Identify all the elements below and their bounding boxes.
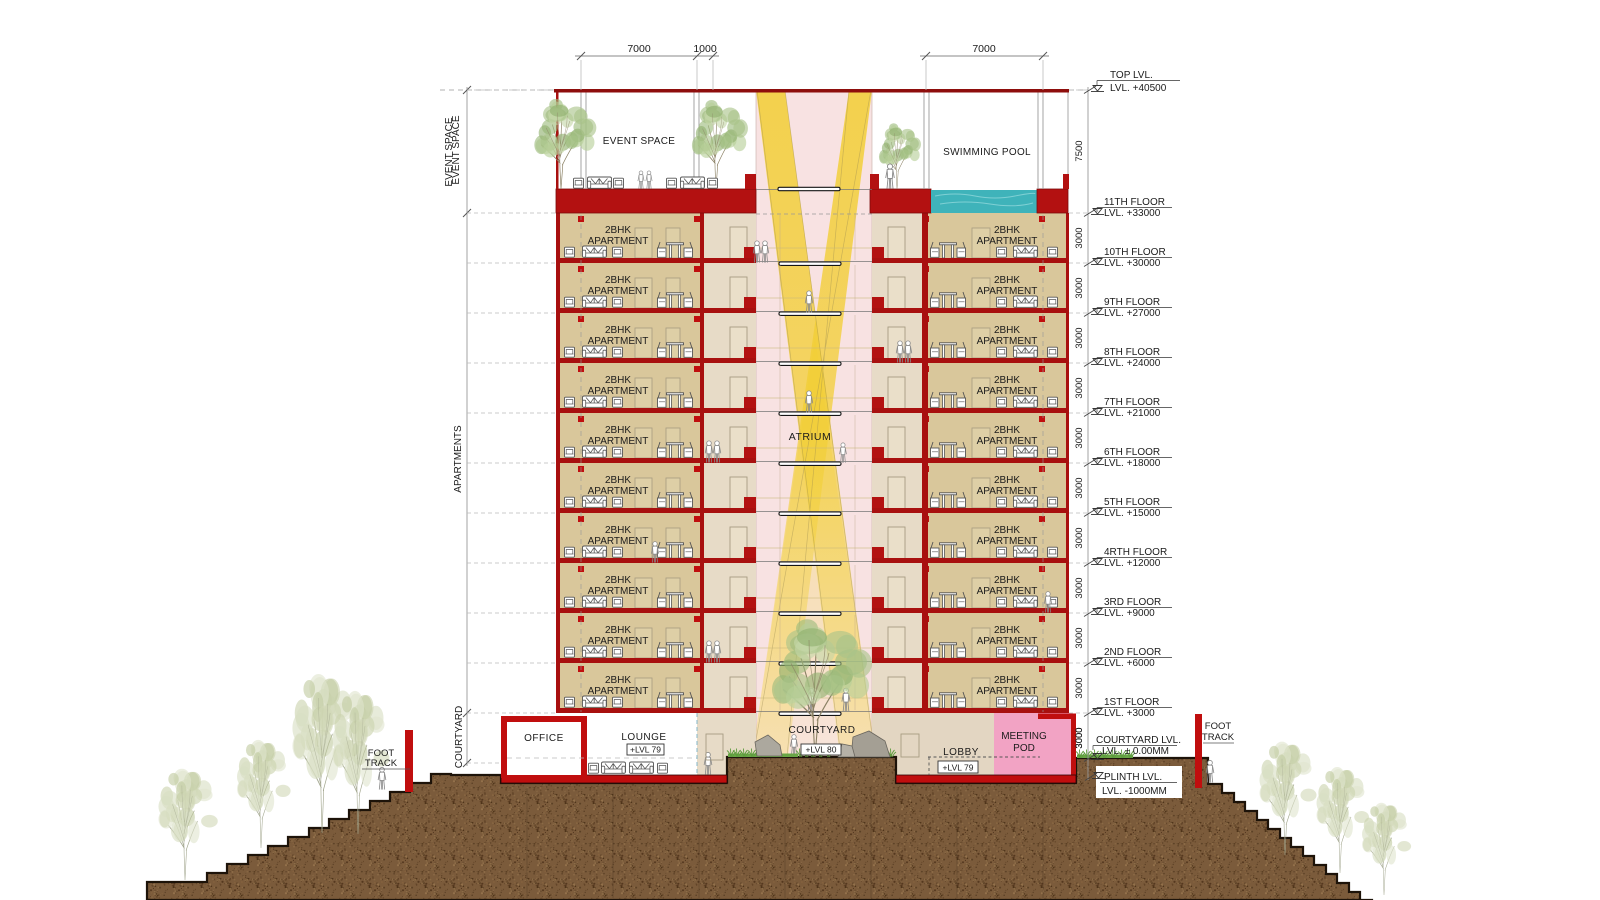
svg-text:TOP LVL.: TOP LVL. (1110, 70, 1153, 81)
svg-text:2BHK: 2BHK (605, 225, 631, 236)
svg-text:SWIMMING POOL: SWIMMING POOL (943, 147, 1031, 158)
svg-text:2BHK: 2BHK (994, 525, 1020, 536)
svg-text:COURTYARD: COURTYARD (789, 725, 856, 736)
svg-text:OFFICE: OFFICE (524, 733, 564, 744)
svg-text:7000: 7000 (972, 43, 996, 55)
svg-text:7500: 7500 (1074, 140, 1085, 161)
svg-text:EVENT SPACE: EVENT SPACE (451, 115, 462, 184)
svg-text:LVL. +9000: LVL. +9000 (1104, 608, 1155, 619)
svg-text:10TH FLOOR: 10TH FLOOR (1104, 247, 1166, 258)
svg-text:3000: 3000 (1074, 677, 1085, 698)
svg-text:2BHK: 2BHK (994, 375, 1020, 386)
svg-text:EVENT SPACE: EVENT SPACE (603, 136, 675, 147)
svg-text:3000: 3000 (1074, 427, 1085, 448)
svg-text:APARTMENT: APARTMENT (977, 486, 1038, 497)
svg-text:6TH FLOOR: 6TH FLOOR (1104, 447, 1160, 458)
svg-text:APARTMENT: APARTMENT (977, 536, 1038, 547)
svg-text:2BHK: 2BHK (994, 425, 1020, 436)
svg-text:LVL. +27000: LVL. +27000 (1104, 308, 1161, 319)
svg-text:APARTMENT: APARTMENT (588, 486, 649, 497)
svg-text:2BHK: 2BHK (994, 225, 1020, 236)
svg-text:2BHK: 2BHK (994, 325, 1020, 336)
svg-text:APARTMENT: APARTMENT (977, 336, 1038, 347)
svg-text:LVL. +18000: LVL. +18000 (1104, 458, 1161, 469)
svg-text:+LVL 79: +LVL 79 (630, 745, 661, 755)
svg-text:2BHK: 2BHK (605, 475, 631, 486)
svg-text:2BHK: 2BHK (605, 625, 631, 636)
svg-text:PLINTH LVL.: PLINTH LVL. (1104, 772, 1162, 783)
svg-text:APARTMENT: APARTMENT (977, 586, 1038, 597)
svg-text:2BHK: 2BHK (605, 675, 631, 686)
svg-text:COURTYARD: COURTYARD (454, 706, 465, 768)
svg-text:2ND FLOOR: 2ND FLOOR (1104, 647, 1161, 658)
svg-text:POD: POD (1013, 743, 1035, 754)
svg-text:4RTH FLOOR: 4RTH FLOOR (1104, 547, 1167, 558)
svg-text:TRACK: TRACK (1202, 732, 1235, 743)
svg-text:APARTMENT: APARTMENT (977, 286, 1038, 297)
svg-text:3000: 3000 (1074, 227, 1085, 248)
svg-text:LVL. +3000: LVL. +3000 (1104, 708, 1155, 719)
svg-text:3000: 3000 (1074, 277, 1085, 298)
svg-text:9TH FLOOR: 9TH FLOOR (1104, 297, 1160, 308)
svg-text:2BHK: 2BHK (605, 375, 631, 386)
svg-text:1000: 1000 (693, 43, 717, 55)
svg-text:APARTMENT: APARTMENT (588, 636, 649, 647)
svg-text:2BHK: 2BHK (605, 525, 631, 536)
svg-text:LVL. +12000: LVL. +12000 (1104, 558, 1161, 569)
svg-text:2BHK: 2BHK (605, 425, 631, 436)
svg-text:APARTMENT: APARTMENT (588, 686, 649, 697)
svg-text:APARTMENT: APARTMENT (588, 286, 649, 297)
svg-text:LVL. +6000: LVL. +6000 (1104, 658, 1155, 669)
svg-text:LVL. ± 0.00MM: LVL. ± 0.00MM (1102, 746, 1169, 757)
svg-text:3000: 3000 (1074, 327, 1085, 348)
svg-text:APARTMENT: APARTMENT (977, 386, 1038, 397)
svg-text:3000: 3000 (1074, 627, 1085, 648)
svg-text:2BHK: 2BHK (994, 275, 1020, 286)
svg-text:ATRIUM: ATRIUM (789, 431, 831, 443)
svg-text:LVL. +40500: LVL. +40500 (1110, 83, 1167, 94)
svg-text:APARTMENTS: APARTMENTS (453, 425, 464, 493)
svg-text:TRACK: TRACK (365, 758, 398, 769)
svg-text:LVL. +15000: LVL. +15000 (1104, 508, 1161, 519)
svg-text:APARTMENT: APARTMENT (588, 386, 649, 397)
svg-text:3000: 3000 (1074, 377, 1085, 398)
svg-text:3000: 3000 (1074, 727, 1085, 748)
svg-text:COURTYARD LVL.: COURTYARD LVL. (1096, 735, 1181, 746)
svg-text:LVL. +21000: LVL. +21000 (1104, 408, 1161, 419)
svg-text:3000: 3000 (1074, 477, 1085, 498)
svg-text:3000: 3000 (1074, 527, 1085, 548)
svg-text:5TH FLOOR: 5TH FLOOR (1104, 497, 1160, 508)
svg-text:APARTMENT: APARTMENT (588, 436, 649, 447)
svg-text:8TH FLOOR: 8TH FLOOR (1104, 347, 1160, 358)
svg-text:FOOT: FOOT (1205, 721, 1232, 732)
svg-text:2BHK: 2BHK (605, 575, 631, 586)
svg-text:+LVL 80: +LVL 80 (806, 745, 837, 755)
svg-text:LVL. +33000: LVL. +33000 (1104, 208, 1161, 219)
svg-text:2BHK: 2BHK (994, 475, 1020, 486)
svg-text:APARTMENT: APARTMENT (977, 236, 1038, 247)
svg-text:2BHK: 2BHK (605, 325, 631, 336)
svg-text:APARTMENT: APARTMENT (977, 636, 1038, 647)
svg-text:3RD FLOOR: 3RD FLOOR (1104, 597, 1161, 608)
svg-text:11TH FLOOR: 11TH FLOOR (1104, 197, 1165, 208)
svg-text:LVL. -1000MM: LVL. -1000MM (1102, 786, 1167, 797)
svg-text:LOBBY: LOBBY (943, 747, 979, 758)
svg-text:+LVL 79: +LVL 79 (943, 763, 974, 773)
svg-text:LOUNGE: LOUNGE (621, 732, 666, 743)
svg-text:MEETING: MEETING (1001, 731, 1047, 742)
svg-text:7000: 7000 (627, 43, 651, 55)
svg-text:2BHK: 2BHK (605, 275, 631, 286)
svg-text:1ST FLOOR: 1ST FLOOR (1104, 697, 1159, 708)
svg-text:APARTMENT: APARTMENT (977, 436, 1038, 447)
svg-text:3000: 3000 (1074, 577, 1085, 598)
svg-text:APARTMENT: APARTMENT (588, 536, 649, 547)
svg-text:2BHK: 2BHK (994, 625, 1020, 636)
svg-text:APARTMENT: APARTMENT (588, 586, 649, 597)
svg-text:APARTMENT: APARTMENT (588, 236, 649, 247)
svg-text:LVL. +24000: LVL. +24000 (1104, 358, 1161, 369)
svg-text:APARTMENT: APARTMENT (588, 336, 649, 347)
svg-text:2BHK: 2BHK (994, 675, 1020, 686)
svg-text:LVL. +30000: LVL. +30000 (1104, 258, 1161, 269)
svg-text:APARTMENT: APARTMENT (977, 686, 1038, 697)
svg-text:7TH FLOOR: 7TH FLOOR (1104, 397, 1160, 408)
svg-text:2BHK: 2BHK (994, 575, 1020, 586)
